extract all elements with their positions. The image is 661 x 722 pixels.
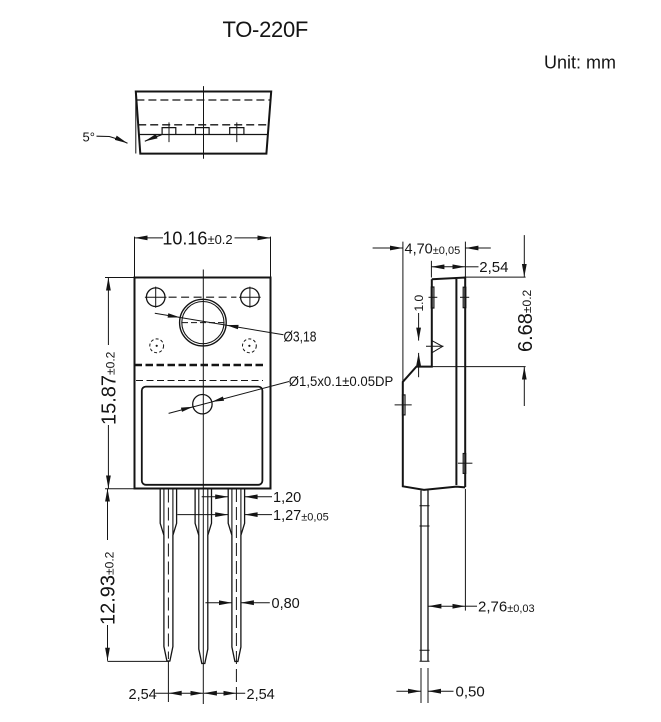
svg-text:4,70±0,05: 4,70±0,05 [405,241,461,257]
svg-text:2,76±0,03: 2,76±0,03 [478,599,535,616]
svg-text:1,20: 1,20 [273,490,301,506]
svg-text:Ø3,18: Ø3,18 [284,328,317,345]
svg-text:0,50: 0,50 [456,684,485,701]
svg-text:2,54: 2,54 [479,259,508,276]
svg-text:TO-220F: TO-220F [223,17,309,42]
svg-text:1,27±0,05: 1,27±0,05 [273,508,329,524]
svg-text:15.87±0.2: 15.87±0.2 [99,351,121,425]
svg-text:Unit: mm: Unit: mm [544,53,616,73]
svg-text:5°: 5° [83,130,95,145]
svg-text:12.93±0.2: 12.93±0.2 [98,551,120,625]
svg-text:6.68±0.2: 6.68±0.2 [515,289,537,352]
svg-text:0,80: 0,80 [272,596,300,612]
svg-text:2,54: 2,54 [129,687,157,703]
svg-text:1.0: 1.0 [412,294,426,311]
svg-text:10.16±0.2: 10.16±0.2 [162,228,232,248]
svg-text:2,54: 2,54 [247,687,275,703]
svg-text:Ø1,5x0.1±0.05DP: Ø1,5x0.1±0.05DP [289,374,394,389]
